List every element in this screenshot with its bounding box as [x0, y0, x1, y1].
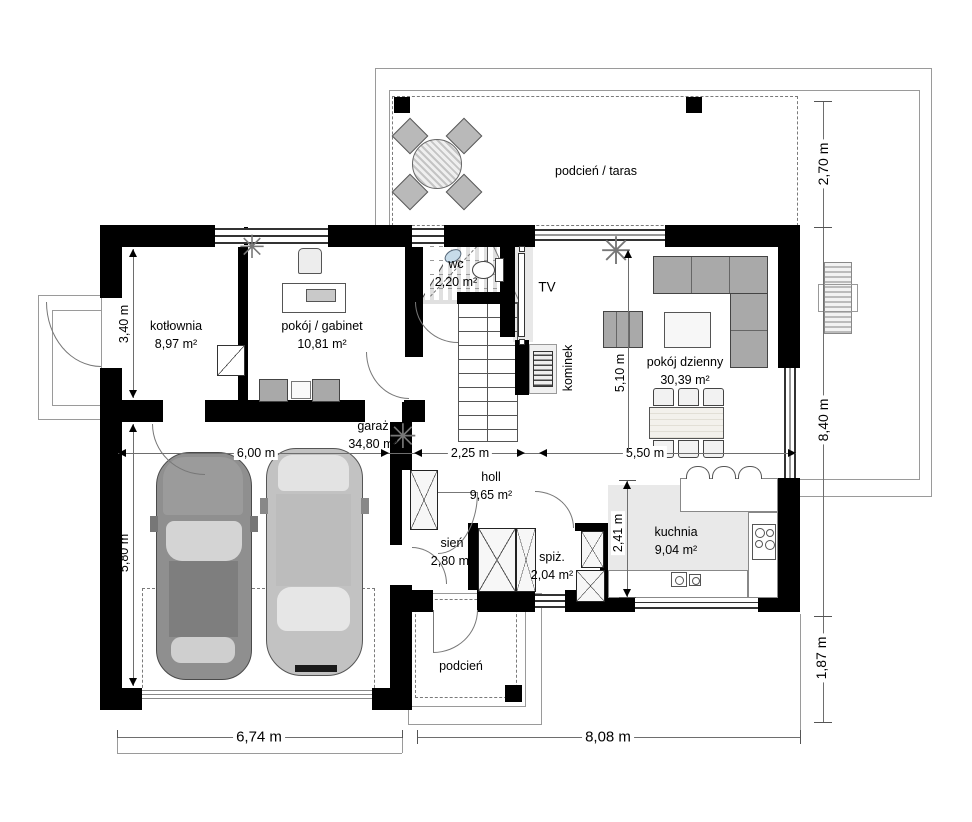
tv-label: TV	[538, 280, 555, 295]
room-area: 8,97 m²	[150, 335, 202, 353]
dimension-arrow	[623, 589, 631, 597]
room-name: sień	[431, 534, 473, 552]
dimension-arrow	[623, 481, 631, 489]
dimension-bracket	[402, 738, 403, 753]
dim-label: 5,10 m	[613, 351, 627, 395]
porch-label: podcień	[439, 659, 483, 673]
door-leaf	[433, 610, 434, 652]
car-roof	[276, 494, 351, 586]
room-label-kotlownia: kotłownia 8,97 m²	[150, 317, 202, 353]
terrace-label: podcień / taras	[555, 164, 637, 178]
dimension-arrow	[129, 249, 137, 257]
room-area: 34,80 m²	[348, 435, 397, 453]
kitchen-counter	[680, 478, 778, 512]
room-area: 2,80 m²	[431, 552, 473, 570]
room-label-garaz: garaż 34,80 m²	[348, 417, 397, 453]
door-arc	[535, 491, 574, 528]
dimension-tick	[619, 597, 636, 598]
wall	[515, 340, 529, 395]
terrace-outline	[375, 68, 932, 69]
dim-label: 6,00 m	[234, 446, 278, 460]
car-mirror	[250, 516, 258, 532]
room-label-kuchnia: kuchnia 9,04 m²	[654, 523, 697, 559]
sun-lounger-frame	[818, 284, 858, 312]
car-windshield	[166, 521, 242, 561]
sofa-seam	[729, 257, 730, 293]
dim-label: 5,50 m	[623, 446, 667, 460]
bar-stool	[738, 466, 762, 479]
burner-icon	[765, 540, 775, 550]
dim-label: 2,70 m	[815, 140, 831, 189]
room-name: pokój / gabinet	[281, 317, 362, 335]
room-label-sien: sień 2,80 m²	[431, 534, 473, 570]
wall	[457, 292, 505, 304]
column	[686, 97, 702, 113]
wall	[238, 247, 248, 402]
wardrobe-icon	[478, 528, 516, 592]
car-dark	[156, 452, 252, 680]
dining-chair	[703, 388, 724, 406]
window	[412, 228, 444, 244]
toilet-tank	[495, 258, 504, 282]
dimension-arrow	[129, 424, 137, 432]
terrace-outline	[375, 68, 376, 225]
dimension-tick	[417, 730, 418, 744]
door-arc	[152, 424, 205, 475]
wall	[205, 400, 365, 422]
dimension-arrow	[118, 449, 126, 457]
window	[215, 228, 328, 244]
dim-label: 6,74 m	[233, 729, 285, 746]
sofa-seam	[731, 330, 767, 331]
car-mirror	[150, 516, 158, 532]
dimension-arrow	[414, 449, 422, 457]
boiler-icon	[217, 345, 245, 376]
dimension-tick	[814, 616, 832, 617]
tv-mount	[519, 246, 525, 252]
wall	[665, 225, 800, 247]
room-name: spiż.	[531, 548, 573, 566]
wall	[100, 400, 163, 422]
floor-plan: ✳ ✳ ✳ 3,40 m 5,80 m 6,00 m 2,25 m 5,50 m…	[0, 0, 972, 822]
dining-chair	[678, 440, 699, 458]
dim-label: 8,08 m	[582, 729, 634, 746]
burner-icon	[766, 529, 774, 537]
dimension-line	[627, 480, 628, 597]
dining-chair	[703, 440, 724, 458]
extension-line	[800, 614, 801, 730]
room-name: wc	[435, 255, 477, 273]
wall	[444, 225, 535, 247]
room-name: kuchnia	[654, 523, 697, 541]
burner-icon	[755, 540, 763, 548]
burner-icon	[755, 528, 765, 538]
wall	[100, 247, 122, 298]
wall	[412, 590, 433, 612]
plant-icon: ✳	[239, 231, 266, 263]
bar-stool	[686, 466, 710, 479]
armchair	[312, 379, 340, 402]
room-area: 9,04 m²	[654, 541, 697, 559]
dim-label: 3,40 m	[117, 305, 131, 343]
dimension-arrow	[517, 449, 525, 457]
garage-door	[142, 690, 375, 699]
room-label-gabinet: pokój / gabinet 10,81 m²	[281, 317, 362, 353]
room-label-spiz: spiż. 2,04 m²	[531, 548, 573, 584]
tv-mount	[519, 339, 525, 345]
dim-label: 2,41 m	[611, 511, 625, 555]
armchair	[603, 311, 643, 348]
dim-label: 8,40 m	[815, 396, 831, 445]
room-name: kotłownia	[150, 317, 202, 335]
bar-stool	[712, 466, 736, 479]
dim-label: 2,25 m	[448, 446, 492, 460]
room-area: 10,81 m²	[281, 335, 362, 353]
room-area: 30,39 m²	[647, 371, 723, 389]
door-arc	[366, 352, 409, 399]
wall	[477, 590, 535, 612]
column	[394, 97, 410, 113]
terrace-outline	[389, 90, 390, 225]
dimension-tick	[800, 730, 801, 744]
car-rear-window	[171, 637, 235, 663]
desk-chair	[298, 248, 322, 274]
window	[784, 368, 796, 478]
pantry-shelf-icon	[581, 531, 604, 568]
dimension-arrow	[129, 390, 137, 398]
dining-chair	[653, 388, 674, 406]
room-area: 2,20 m²	[435, 273, 477, 291]
terrace-outline	[389, 90, 920, 91]
terrace-outline	[919, 90, 920, 480]
dimension-line	[133, 249, 134, 398]
dimension-tick	[814, 101, 832, 102]
room-label-dzienny: pokój dzienny 30,39 m²	[647, 353, 723, 389]
wall	[390, 585, 412, 710]
room-name: holl	[470, 468, 512, 486]
side-table	[291, 381, 311, 399]
room-area: 9,65 m²	[470, 486, 512, 504]
dim-label: 5,80 m	[117, 534, 131, 572]
room-label-wc: wc 2,20 m²	[435, 255, 477, 291]
sofa	[730, 294, 768, 368]
room-area: 2,04 m²	[531, 566, 573, 584]
car-light	[266, 448, 363, 676]
terrace-outline	[931, 68, 932, 497]
car-mirror	[260, 498, 268, 514]
car-roof	[169, 561, 238, 637]
wall	[778, 247, 800, 368]
pantry-shelf-icon	[576, 570, 605, 602]
dimension-tick	[814, 227, 832, 228]
car-mirror	[361, 498, 369, 514]
sofa-seam	[691, 257, 692, 293]
coffee-table	[664, 312, 711, 348]
dimension-arrow	[129, 678, 137, 686]
sink-drain	[675, 576, 684, 585]
wall	[100, 225, 215, 247]
sink-drain	[692, 577, 700, 585]
wall	[100, 688, 142, 710]
car-rear-window	[278, 455, 349, 491]
dimension-bracket	[117, 753, 402, 754]
tv-icon	[518, 253, 525, 337]
room-label-holl: holl 9,65 m²	[470, 468, 512, 504]
fireplace-icon	[533, 351, 553, 387]
terrace-outline	[800, 496, 932, 497]
dimension-arrow	[624, 250, 632, 258]
dimension-arrow	[539, 449, 547, 457]
wardrobe-icon	[410, 470, 438, 530]
wall	[328, 225, 412, 247]
dimension-line	[133, 424, 134, 686]
armchair-seam	[616, 312, 617, 347]
column	[505, 685, 522, 702]
terrace-outline	[800, 479, 920, 480]
dining-table	[649, 407, 724, 439]
dimension-tick	[814, 722, 832, 723]
car-grill	[295, 665, 337, 672]
room-name: pokój dzienny	[647, 353, 723, 371]
dimension-bracket	[117, 738, 118, 753]
dining-chair	[678, 388, 699, 406]
dim-label: 1,87 m	[813, 634, 829, 683]
fireplace-label: kominek	[561, 345, 575, 392]
armchair-seam	[629, 312, 630, 347]
room-name: garaż	[348, 417, 397, 435]
sofa	[653, 256, 768, 294]
armchair	[259, 379, 288, 402]
laptop-icon	[306, 289, 336, 302]
dimension-arrow	[788, 449, 796, 457]
dimension-line	[628, 250, 629, 453]
window	[535, 594, 565, 608]
car-windshield	[277, 587, 350, 631]
